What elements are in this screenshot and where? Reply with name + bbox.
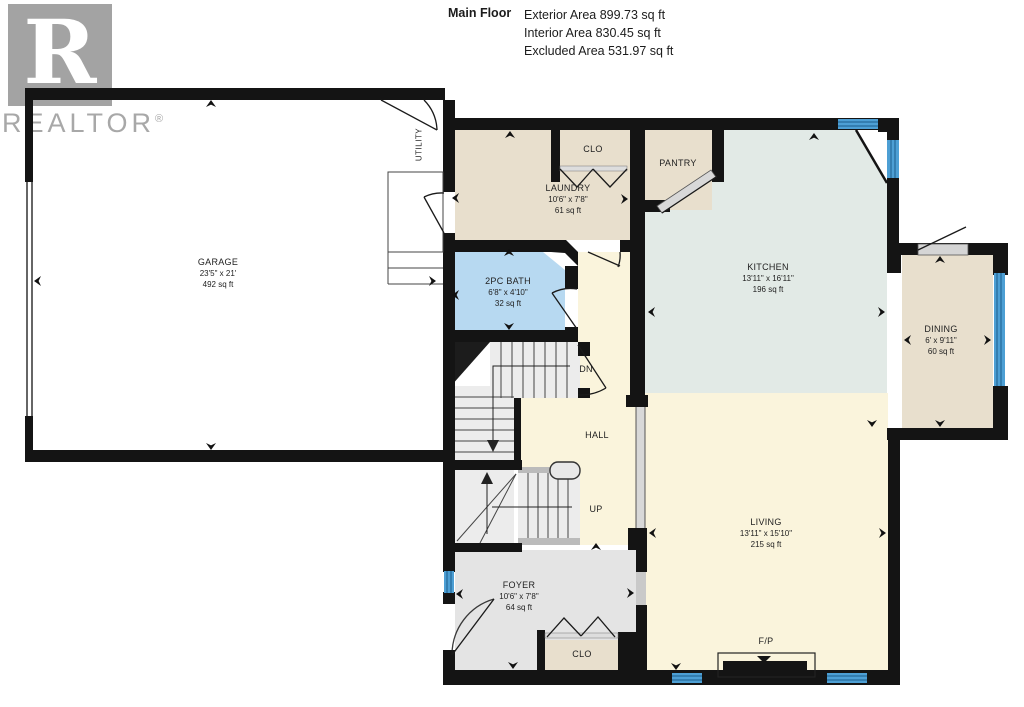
- window: [827, 673, 867, 683]
- foyer-archway: [636, 572, 646, 605]
- laundry-floor: [455, 130, 630, 240]
- stairs-up: [455, 462, 580, 545]
- utility-closet: [388, 172, 443, 284]
- dining-exterior-door: [918, 227, 968, 255]
- stair-rail-cap: [550, 462, 580, 479]
- window: [994, 273, 1005, 386]
- garage-entry-door: [381, 100, 437, 130]
- window: [887, 140, 899, 178]
- window: [444, 571, 454, 593]
- railing-half-wall: [636, 405, 646, 605]
- living-floor: [645, 393, 888, 670]
- floor-plan-page: Main Floor Exterior Area 899.73 sq ft In…: [0, 0, 1024, 707]
- dining-floor: [902, 255, 993, 428]
- room-fills: [451, 130, 993, 670]
- hall-corridor-floor: [578, 252, 630, 398]
- window: [838, 119, 878, 129]
- floor-plan-drawing: [0, 0, 1024, 707]
- bath-floor: [451, 252, 565, 330]
- window: [672, 673, 702, 683]
- foyer-closet-floor: [545, 640, 618, 670]
